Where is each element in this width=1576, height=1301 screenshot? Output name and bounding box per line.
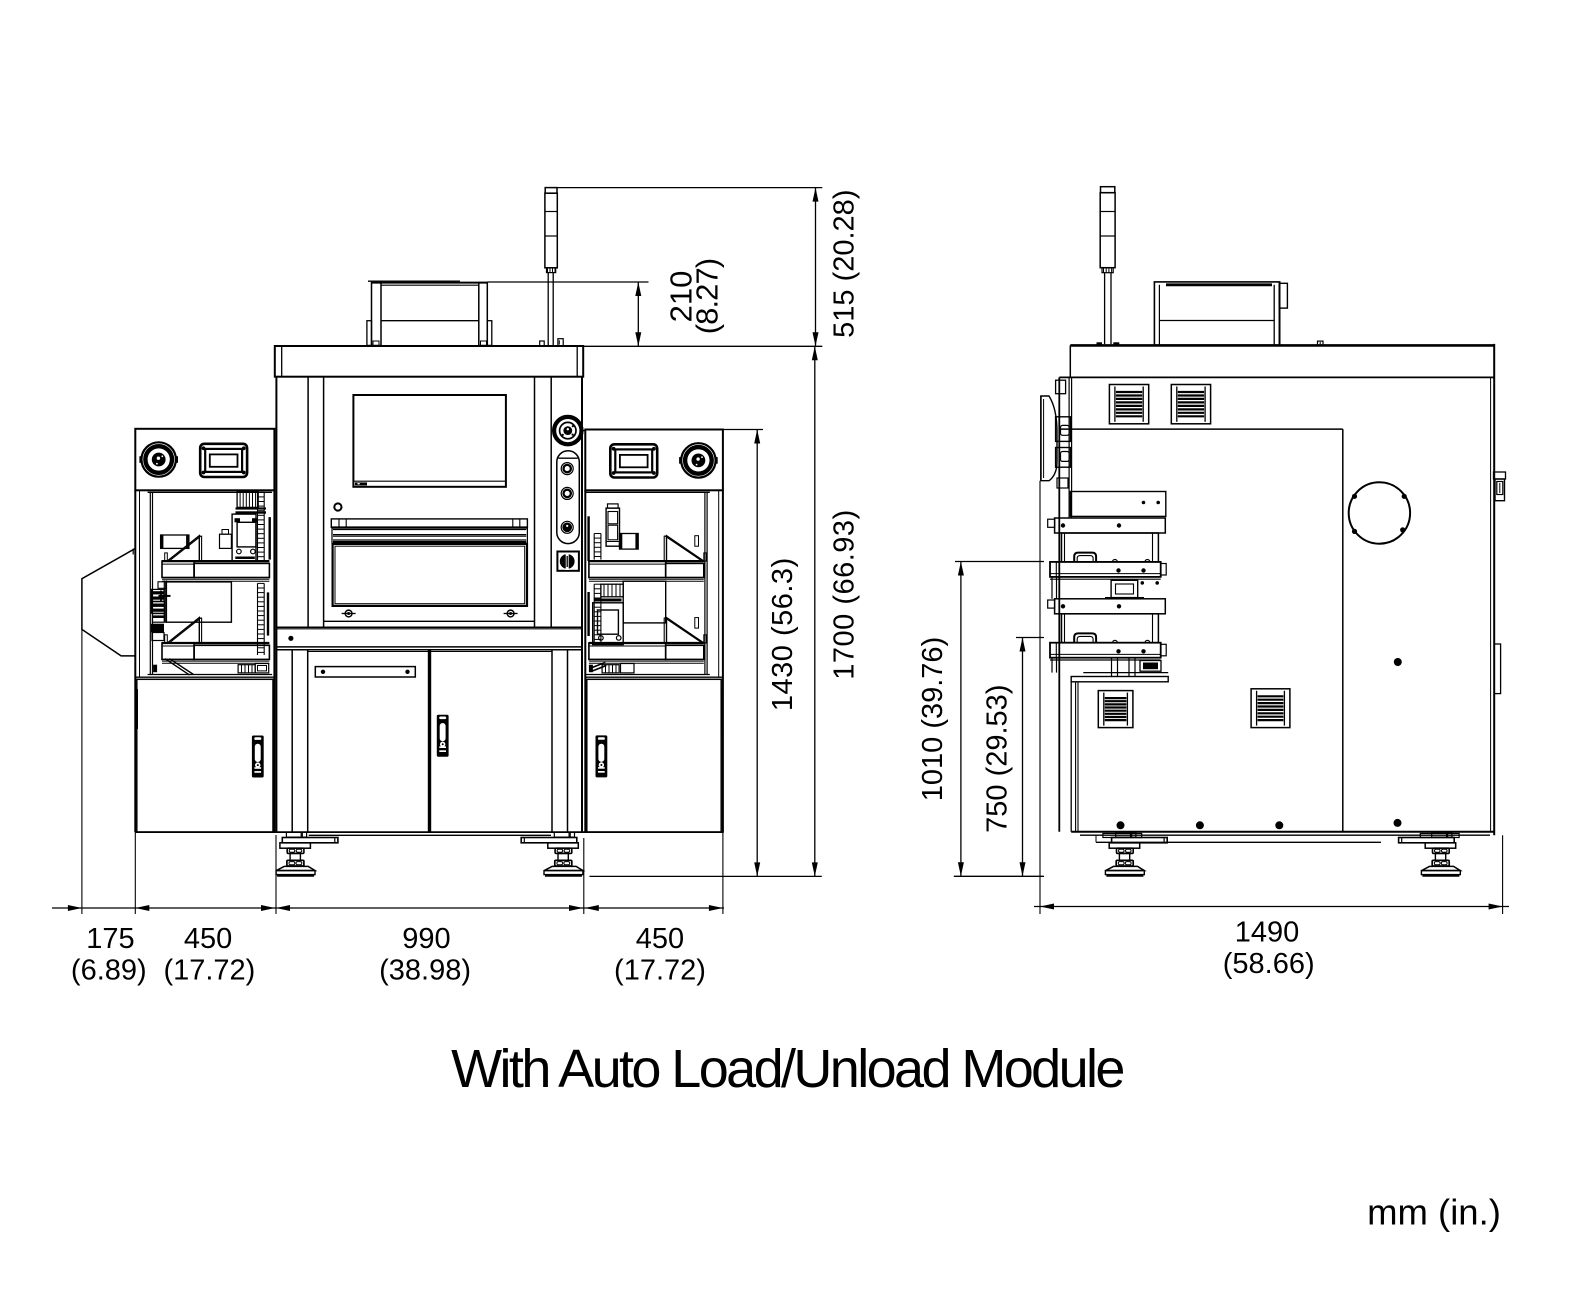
svg-text:1010 (39.76): 1010 (39.76) bbox=[917, 637, 949, 801]
svg-text:515 (20.28): 515 (20.28) bbox=[829, 190, 861, 338]
svg-text:(17.72): (17.72) bbox=[163, 955, 255, 987]
svg-text:990: 990 bbox=[402, 923, 450, 955]
svg-text:1430 (56.3): 1430 (56.3) bbox=[767, 557, 799, 711]
svg-text:(17.72): (17.72) bbox=[614, 955, 706, 987]
svg-text:450: 450 bbox=[636, 923, 684, 955]
svg-text:With Auto Load/Unload Module: With Auto Load/Unload Module bbox=[451, 1039, 1123, 1099]
svg-text:1490: 1490 bbox=[1235, 917, 1300, 949]
svg-text:mm (in.): mm (in.) bbox=[1367, 1192, 1501, 1233]
svg-text:1700 (66.93): 1700 (66.93) bbox=[829, 509, 861, 679]
svg-text:(58.66): (58.66) bbox=[1223, 948, 1315, 980]
svg-text:(6.89): (6.89) bbox=[71, 955, 147, 987]
svg-text:(8.27): (8.27) bbox=[690, 259, 725, 335]
svg-text:750 (29.53): 750 (29.53) bbox=[982, 685, 1014, 833]
svg-text:175: 175 bbox=[86, 923, 134, 955]
svg-text:450: 450 bbox=[184, 923, 232, 955]
svg-text:(38.98): (38.98) bbox=[379, 955, 471, 987]
